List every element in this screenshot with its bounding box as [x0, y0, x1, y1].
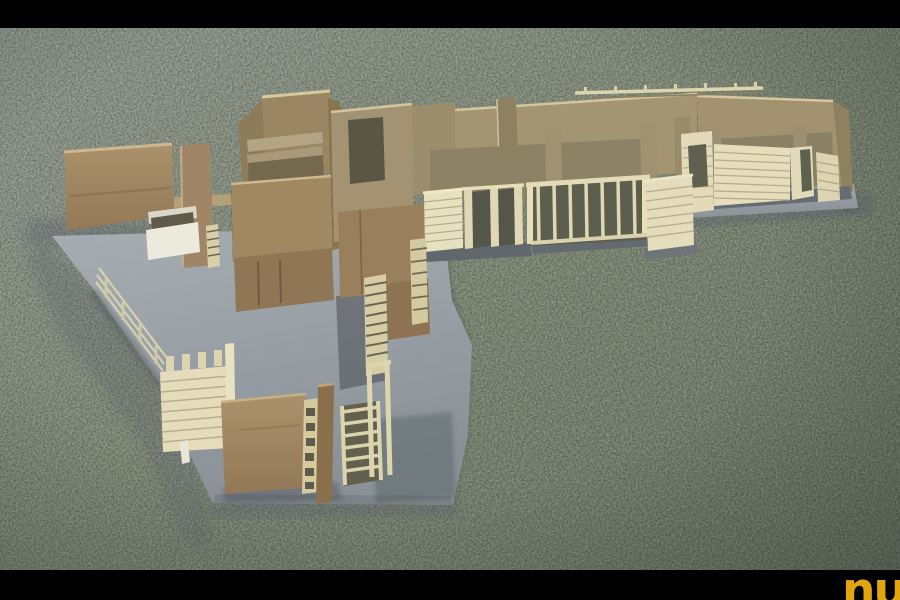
doorway-opening — [348, 117, 385, 184]
courtyard-ladder — [341, 401, 381, 486]
gate-fence — [462, 185, 524, 249]
gate-stile-3 — [514, 185, 523, 245]
courtyard-brown-wall — [221, 394, 320, 494]
descending-ladder — [364, 274, 388, 376]
wood-enclosure — [231, 91, 342, 312]
rung-strip-face — [410, 238, 428, 325]
courtyard-tall-post — [316, 384, 334, 504]
brown-wall-face — [221, 394, 306, 494]
slat-wall-face — [816, 152, 840, 202]
enclosure-door-seam-2 — [280, 260, 281, 303]
door-frame-left — [369, 366, 372, 477]
slat-piece — [423, 189, 463, 252]
letterbox-bottom — [0, 570, 900, 600]
gate-panel-1 — [472, 190, 491, 248]
letterbox-top — [0, 0, 900, 28]
tall-post-face — [316, 384, 334, 504]
right-corner-slat — [816, 152, 840, 202]
watermark-logo: nu — [842, 563, 900, 600]
photo-frame: nu — [0, 0, 900, 600]
model-photograph: nu — [0, 0, 900, 600]
baluster-fence — [526, 177, 650, 246]
right-slat-wall-wide — [714, 144, 790, 206]
planter-box — [146, 206, 200, 260]
plate-shadow-frame — [372, 412, 456, 503]
right-slat-pillar-right — [790, 146, 814, 200]
right-edge-rung-strip — [410, 238, 428, 325]
enclosure-door-seam-1 — [258, 262, 259, 306]
gate-panel-2 — [498, 188, 515, 246]
right-wing-rooms — [681, 124, 852, 214]
door-frame-right — [387, 363, 390, 475]
gate-stile-1 — [464, 189, 473, 249]
gate-stile-2 — [490, 187, 499, 247]
slat-segment-right — [644, 175, 694, 251]
window-opening — [800, 149, 812, 192]
